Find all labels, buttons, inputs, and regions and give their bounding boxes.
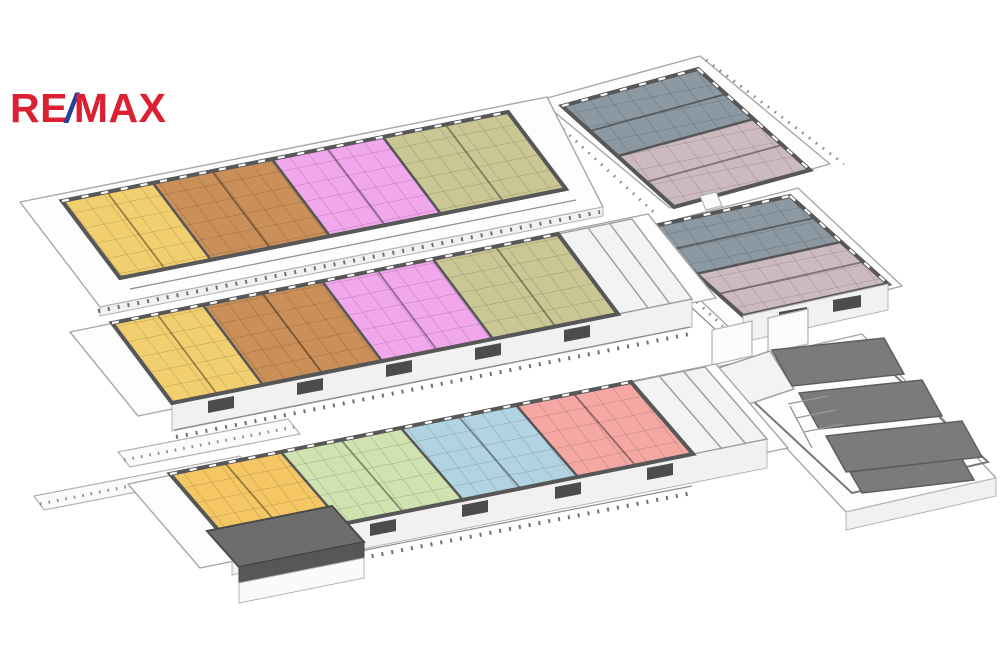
isometric-floorplan: [0, 0, 1000, 667]
floorplan-render-page: RE/MAX: [0, 0, 1000, 667]
